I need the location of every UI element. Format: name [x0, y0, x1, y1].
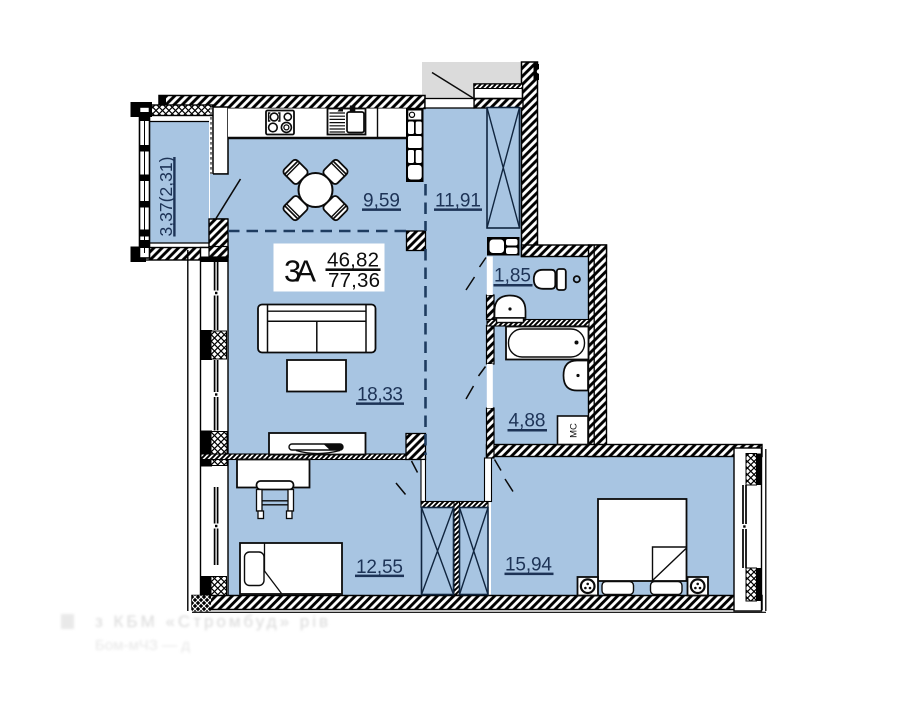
- svg-text:77,36: 77,36: [328, 269, 380, 292]
- svg-text:4,88: 4,88: [509, 411, 546, 432]
- svg-text:Бом-мЧЗ — д: Бом-мЧЗ — д: [95, 637, 190, 654]
- svg-text:3А: 3А: [284, 254, 316, 289]
- svg-text:18,33: 18,33: [357, 385, 403, 406]
- svg-text:МС: МС: [569, 423, 580, 438]
- svg-text:15,94: 15,94: [505, 555, 552, 576]
- svg-text:з КБМ «Стромбуд» рів: з КБМ «Стромбуд» рів: [95, 612, 331, 631]
- svg-text:3,37(2,31): 3,37(2,31): [156, 157, 176, 237]
- svg-text:11,91: 11,91: [435, 191, 481, 212]
- svg-text:1,85: 1,85: [494, 266, 531, 287]
- svg-text:9,59: 9,59: [363, 191, 400, 212]
